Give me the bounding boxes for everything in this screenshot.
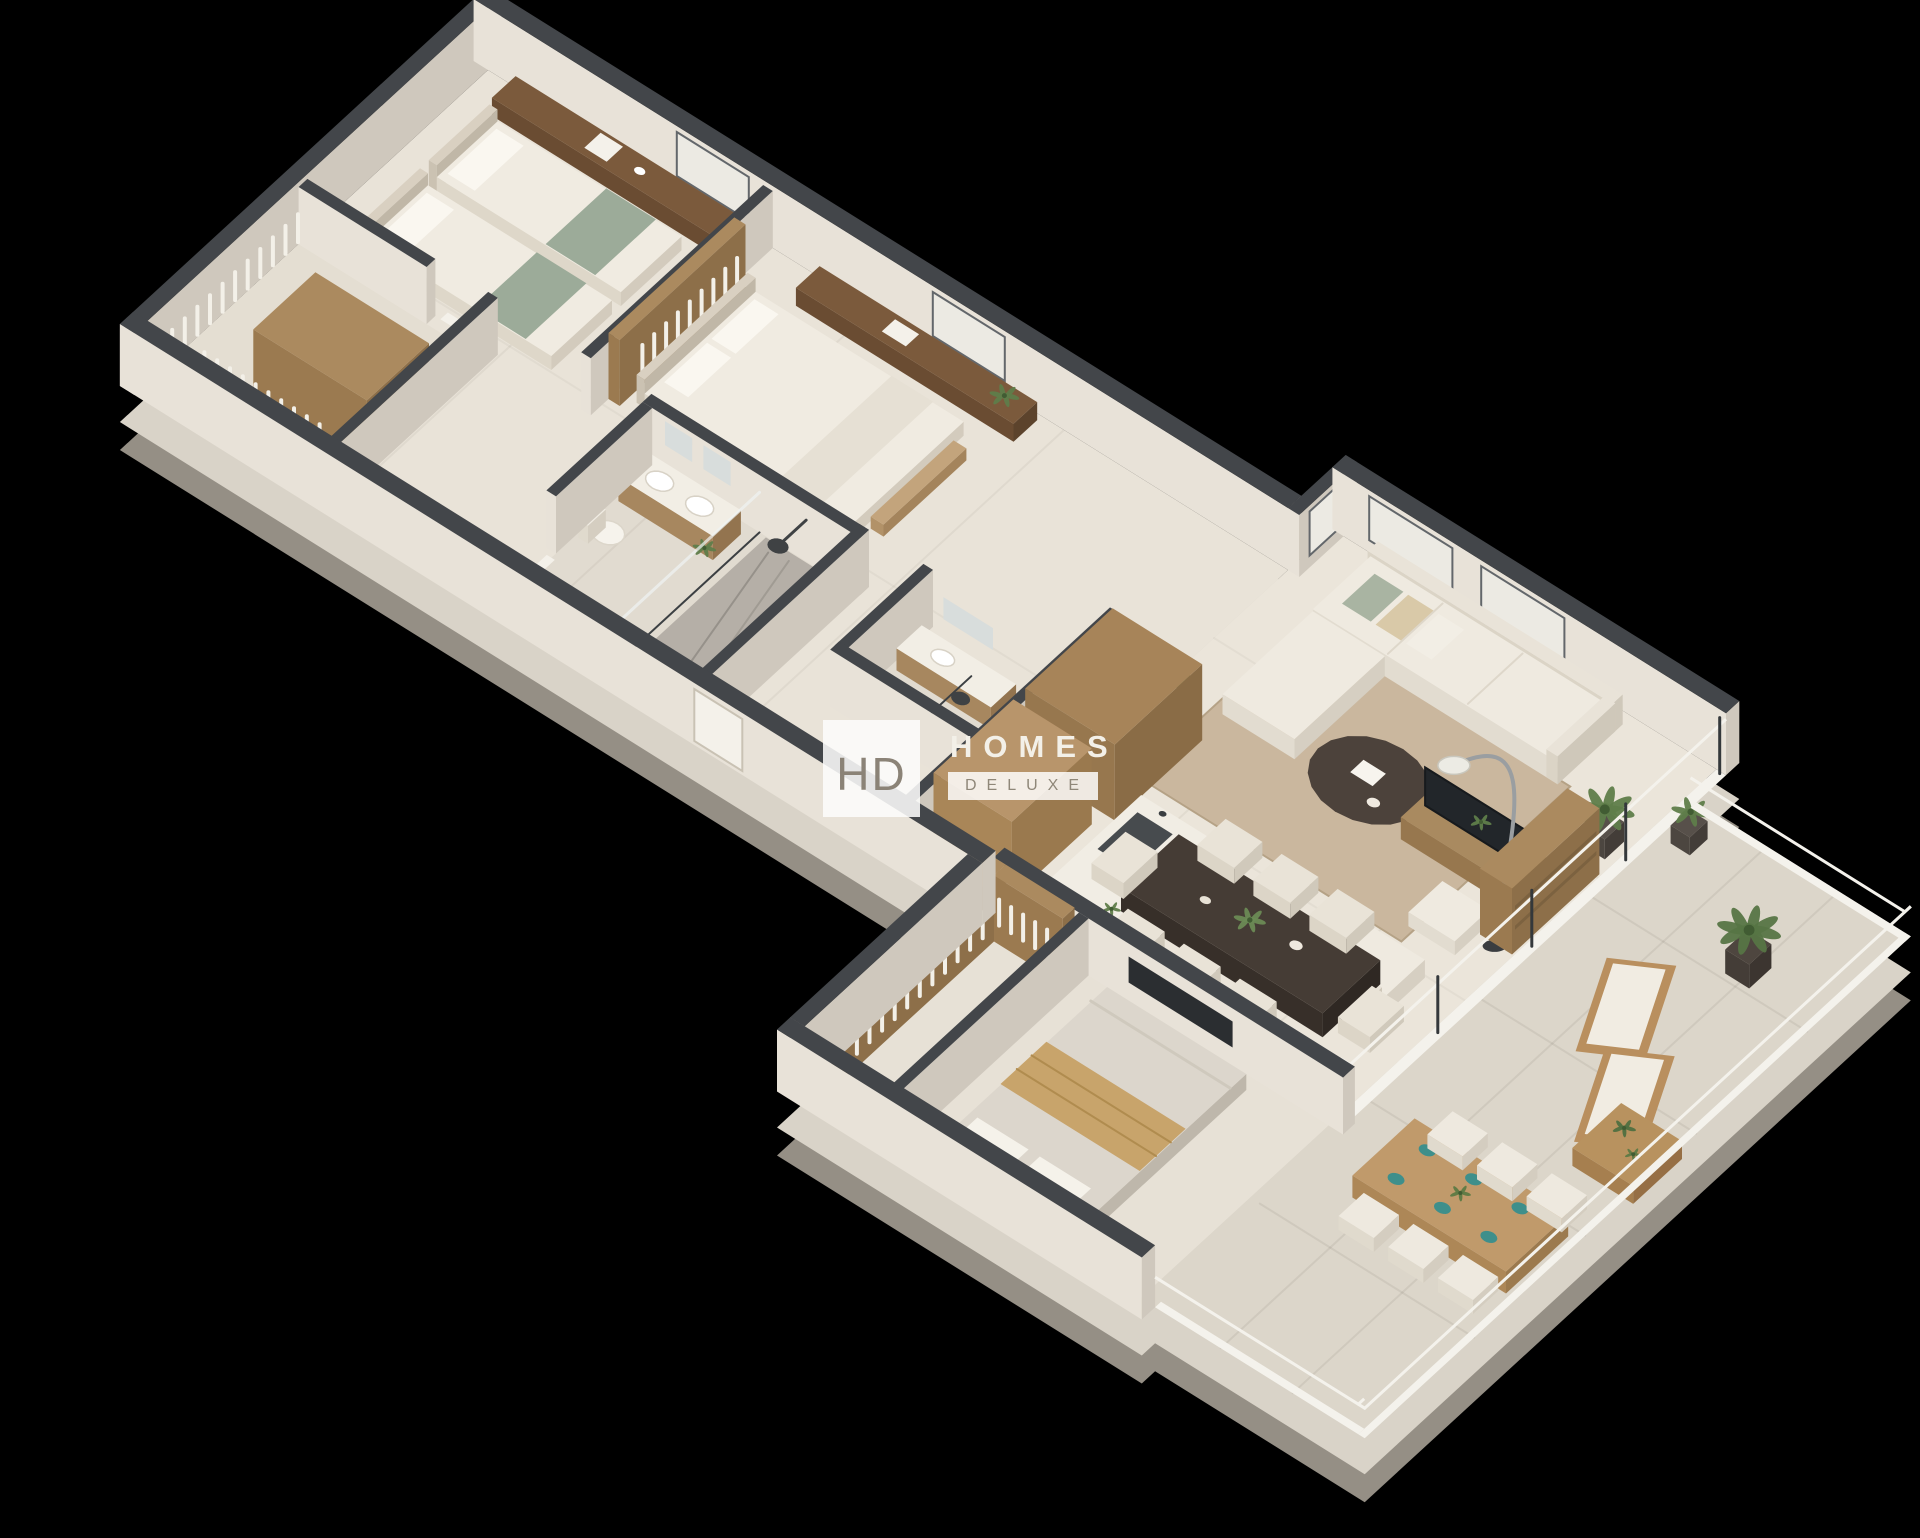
plant	[1622, 1126, 1626, 1130]
watermark-deluxe-box: DELUXE	[948, 772, 1098, 800]
table-plant	[1458, 1191, 1462, 1195]
bed-headboard	[429, 160, 437, 191]
exterior-wall-sw	[982, 851, 995, 925]
plant	[1002, 393, 1007, 398]
watermark-hd-box: HD	[823, 720, 920, 817]
plant	[1109, 907, 1113, 911]
exterior-wall-living-ne	[1726, 701, 1739, 775]
wardrobe-panel	[609, 333, 620, 406]
plant	[1631, 1152, 1635, 1156]
partition-bed1-bed2	[581, 352, 591, 415]
arc-floor-lamp	[1438, 756, 1470, 774]
watermark-hd-text: HD	[836, 747, 906, 801]
centerpiece	[1247, 917, 1252, 922]
palm-plant	[1600, 804, 1610, 814]
palm-plant	[1687, 809, 1693, 815]
plant	[702, 546, 706, 550]
partition-ensuite-w	[546, 490, 556, 553]
tv-artwork-greens	[1479, 820, 1483, 824]
exterior-wall-step	[1288, 508, 1299, 577]
partition-dressing-n	[427, 259, 436, 324]
watermark-deluxe-text: DELUXE	[965, 777, 1089, 795]
palm-plant	[1744, 925, 1755, 936]
exterior-wall-lower-s	[1142, 1245, 1155, 1319]
page: HD HOMES DELUXE	[0, 0, 1920, 1538]
wall-master-n	[1343, 1067, 1355, 1135]
floorplan-3d-render	[0, 0, 1920, 1538]
watermark-homes-text: HOMES	[950, 729, 1119, 765]
